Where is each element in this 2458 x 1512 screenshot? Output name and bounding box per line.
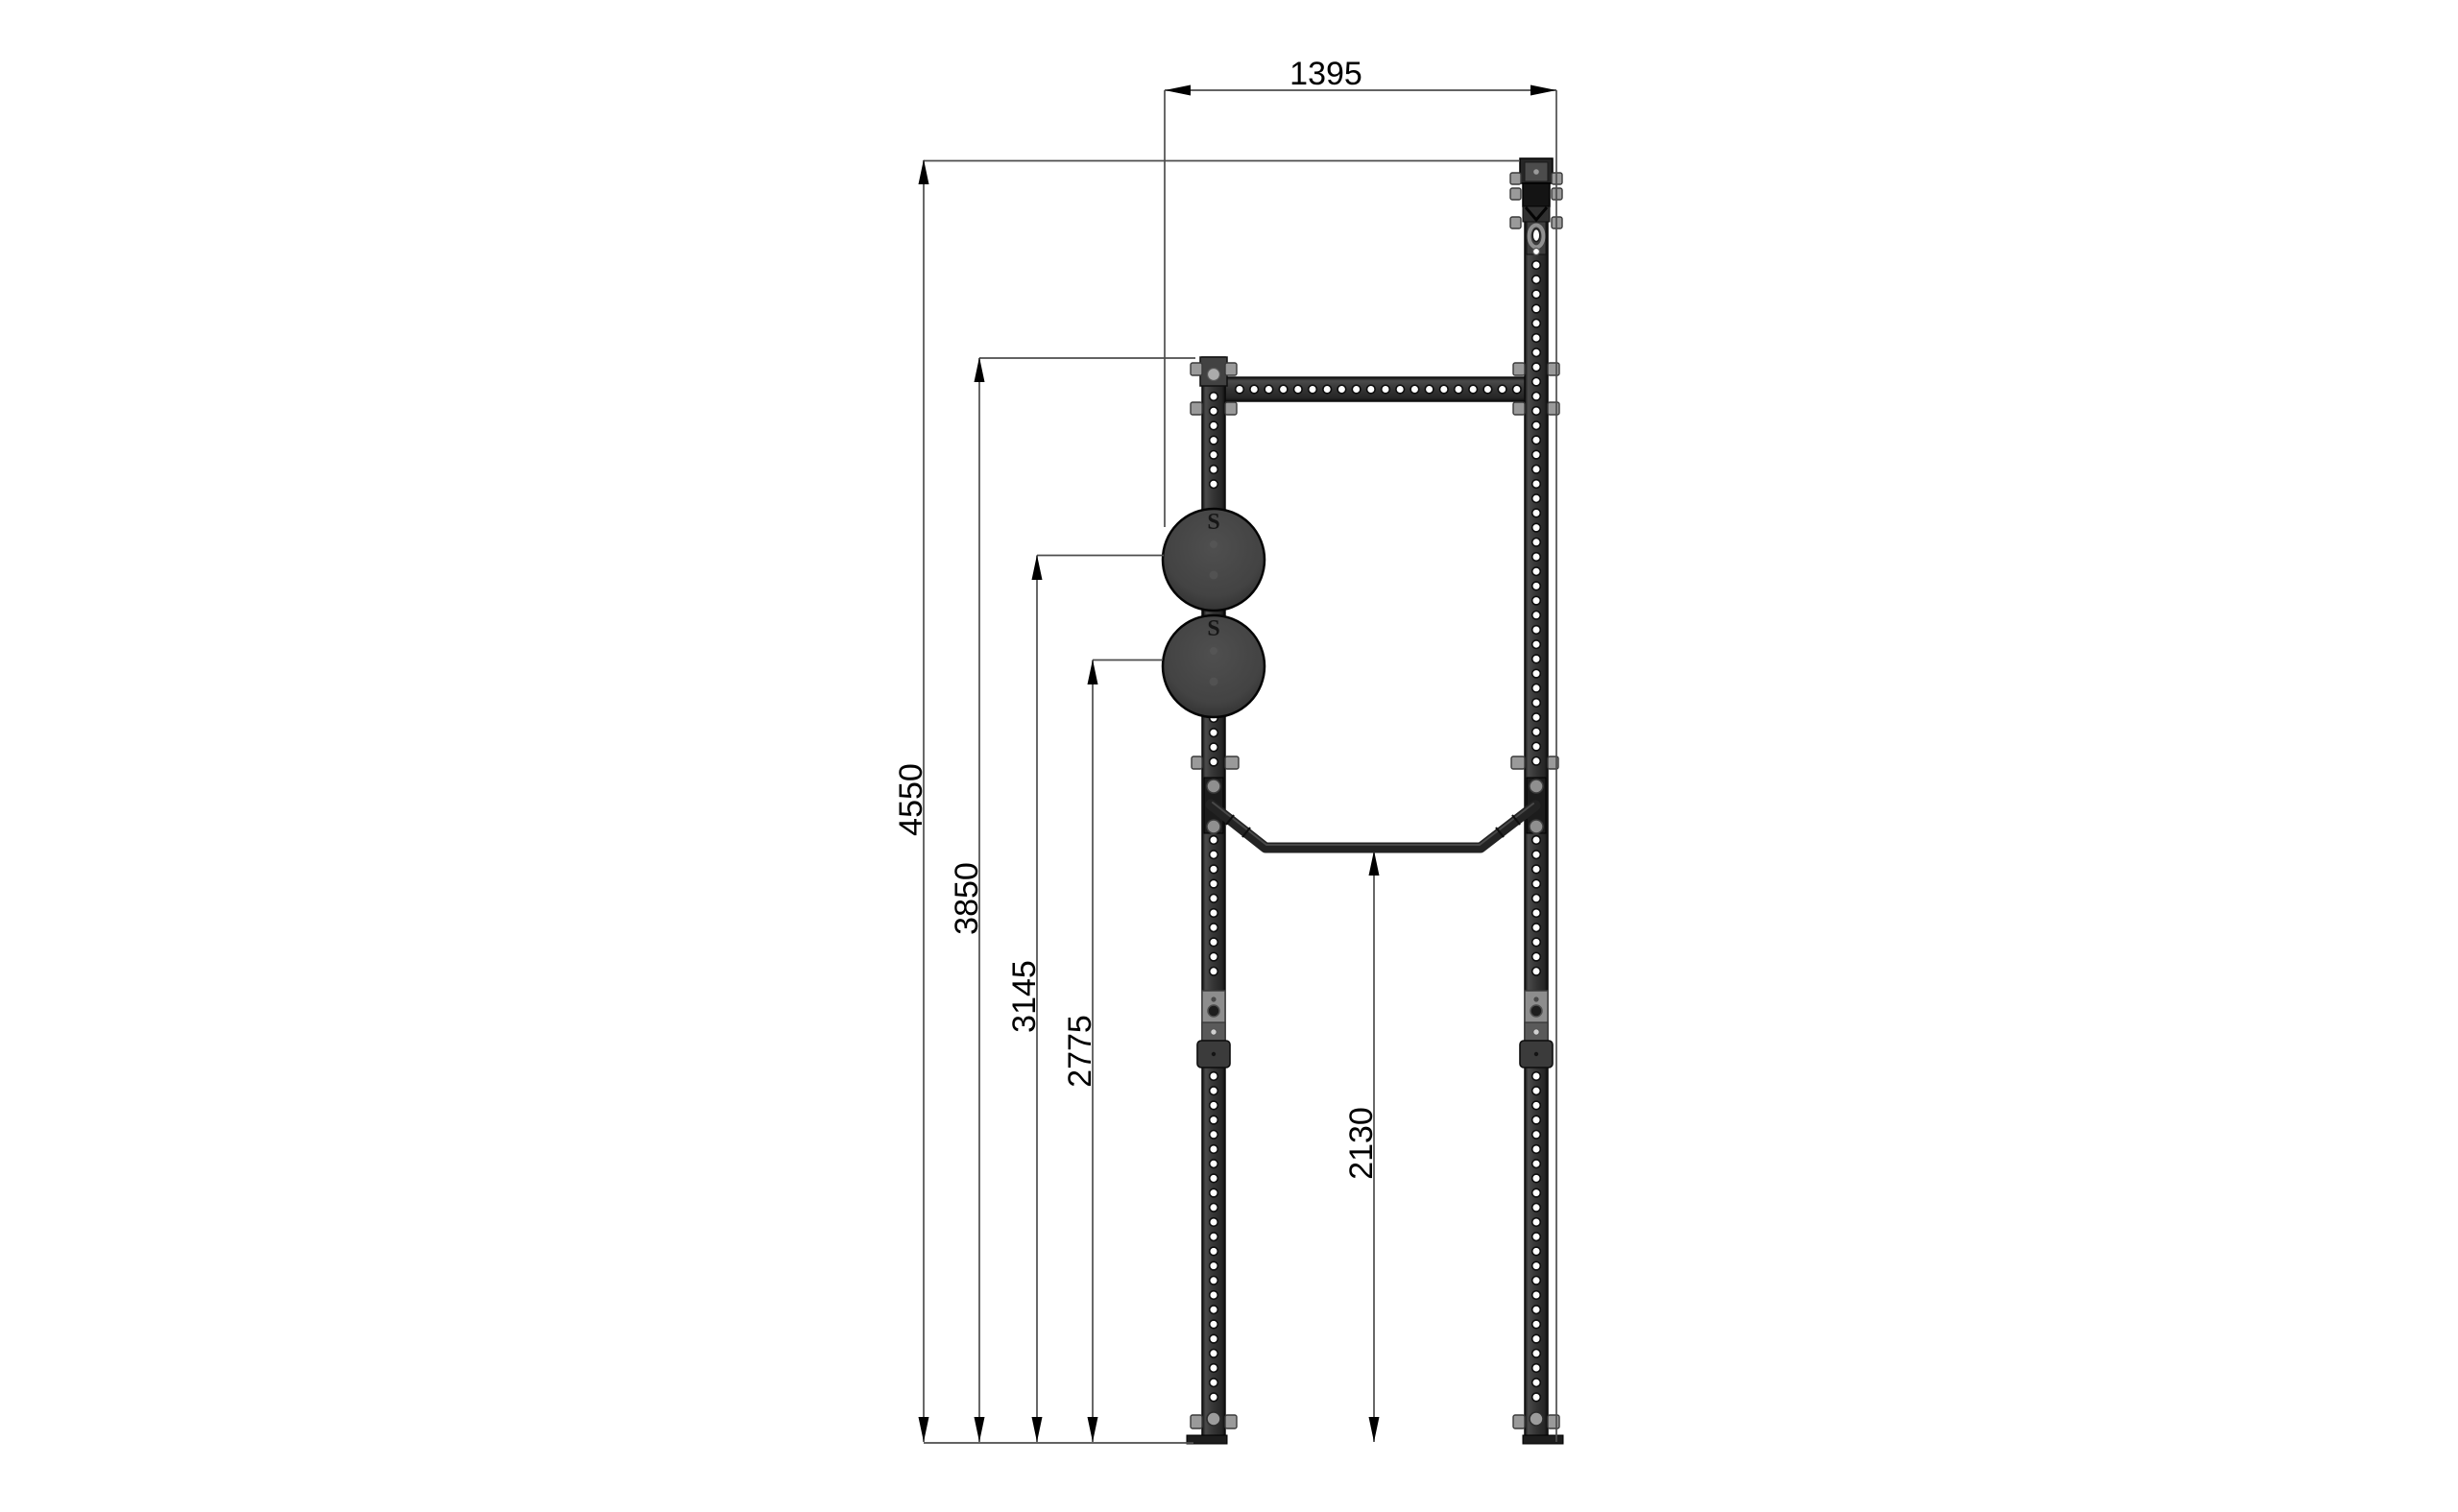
dim-label-4550: 4550 <box>893 763 929 836</box>
right-upright-topper <box>1510 158 1562 255</box>
dim-label-1395: 1395 <box>1289 56 1362 92</box>
right-upright-splice-joint <box>1520 991 1553 1068</box>
dim-lower-ball-height: 2775 <box>1062 660 1163 1442</box>
ball-logo: S <box>1207 510 1219 535</box>
dim-label-3145: 3145 <box>1006 960 1043 1033</box>
cannonball-upper: S <box>1163 509 1265 611</box>
dim-pullup-bar-height: 2130 <box>1343 851 1380 1442</box>
dim-label-2130: 2130 <box>1343 1107 1380 1180</box>
bar-pin <box>1530 820 1543 833</box>
crossmember-beam <box>1225 377 1526 401</box>
dim-upper-ball-height: 3145 <box>1006 555 1164 1442</box>
dim-short-upright-height: 3850 <box>949 357 1195 1442</box>
rig-dimension-drawing: S S 1395 <box>0 0 2458 1512</box>
dim-label-3850: 3850 <box>949 862 985 935</box>
left-upright-splice-joint <box>1197 991 1230 1068</box>
bar-knurl-marks <box>1226 815 1520 837</box>
bar-pin <box>1530 780 1543 793</box>
cannonball-lower: S <box>1163 615 1265 717</box>
bar-pin <box>1207 780 1220 793</box>
pullup-bar <box>1211 803 1535 848</box>
drawing-canvas: S S 1395 <box>0 0 2458 1512</box>
bar-pin <box>1207 820 1220 833</box>
dim-label-2775: 2775 <box>1062 1015 1098 1088</box>
rig-structure: S S <box>1163 158 1563 1444</box>
ball-logo: S <box>1207 616 1219 641</box>
cannonball-grips: S S <box>1163 509 1265 717</box>
